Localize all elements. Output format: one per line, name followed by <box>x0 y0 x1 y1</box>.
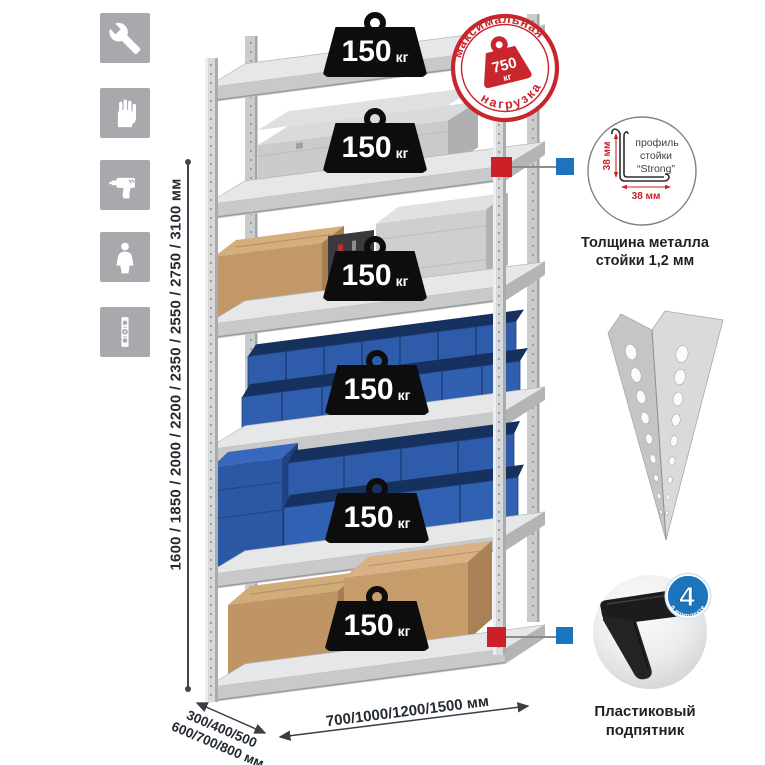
gloves-feature-tile <box>100 88 150 138</box>
profile-dim-vertical-label: 38 мм <box>602 142 613 171</box>
profile-callout-line <box>512 166 556 168</box>
profile-callout-blue-marker <box>556 158 574 175</box>
weight-ring-icon <box>364 236 386 258</box>
wrench-icon <box>108 21 142 55</box>
shelf-load-badge-4: 150 кг <box>325 350 429 415</box>
profile-callout-red-marker <box>491 157 512 177</box>
svg-text:“Strong”: “Strong” <box>637 163 675 175</box>
weight-body-icon: 150 кг <box>325 601 429 651</box>
shelf-load-badge-5: 150 кг <box>325 478 429 543</box>
angle-post-image <box>595 302 735 547</box>
drill-feature-tile <box>100 160 150 210</box>
gloves-icon <box>108 96 142 130</box>
foot-callout-blue-marker <box>556 627 573 644</box>
width-dimension: 700/1000/1200/1500 мм <box>268 692 558 762</box>
weight-ring-icon <box>366 350 388 372</box>
max-load-stamp: максимальная нагрузка 750 кг <box>443 6 567 130</box>
weight-body-icon: 150 кг <box>323 251 427 301</box>
shelf-load-badge-3: 150 кг <box>323 236 427 301</box>
weight-body-icon: 150 кг <box>325 365 429 415</box>
assembly-feature-tile <box>100 13 150 63</box>
foot-callout-red-marker <box>487 627 506 647</box>
foot-caption: Пластиковый подпятник <box>570 703 720 741</box>
shelving-product-infographic: 1600 / 1850 / 2000 / 2200 / 2350 / 2550 … <box>0 0 765 765</box>
quantity-badge: 4 в комплекте <box>665 573 712 620</box>
profile-caption: Толщина металла стойки 1,2 мм <box>570 234 720 270</box>
shelf-load-badge-6: 150 кг <box>325 586 429 651</box>
weight-ring-icon <box>366 478 388 500</box>
shelf-load-badge-2: 150 кг <box>323 108 427 173</box>
foot-callout-line <box>506 636 556 638</box>
plastic-foot-detail: 4 в комплекте <box>585 570 720 695</box>
weight-ring-icon <box>364 108 386 130</box>
width-dimension-label: 700/1000/1200/1500 мм <box>325 693 490 730</box>
shelf-load-badge-1: 150 кг <box>323 12 427 77</box>
weight-ring-icon <box>364 12 386 34</box>
height-dimension-label: 1600 / 1850 / 2000 / 2200 / 2350 / 2550 … <box>168 115 185 635</box>
svg-text:стойки: стойки <box>640 150 672 162</box>
person-feature-tile <box>100 232 150 282</box>
quantity-badge-value: 4 <box>679 581 695 612</box>
person-icon <box>108 240 142 274</box>
profile-dim-horizontal-label: 38 мм <box>632 191 661 202</box>
level-icon <box>108 315 142 349</box>
level-feature-tile <box>100 307 150 357</box>
weight-body-icon: 150 кг <box>325 493 429 543</box>
post-profile-detail: 38 мм 38 мм профиль стойки “Strong” <box>580 108 720 238</box>
weight-body-icon: 150 кг <box>323 27 427 77</box>
svg-text:профиль: профиль <box>635 137 679 149</box>
weight-body-icon: 150 кг <box>323 123 427 173</box>
drill-icon <box>108 168 142 202</box>
weight-ring-icon <box>366 586 388 608</box>
